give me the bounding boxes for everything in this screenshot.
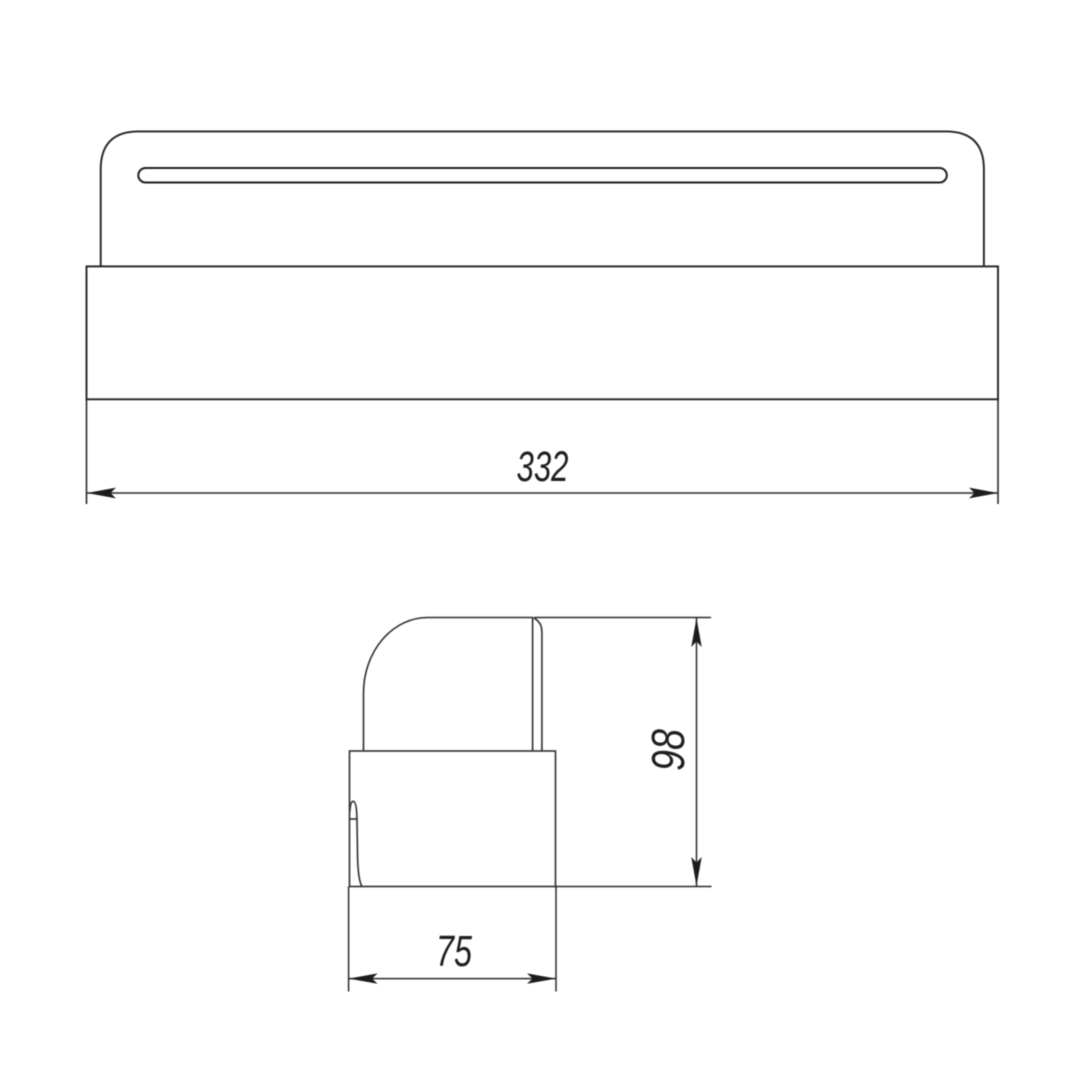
svg-text:98: 98 [642, 729, 694, 771]
svg-text:75: 75 [436, 927, 472, 976]
svg-text:332: 332 [517, 443, 569, 491]
